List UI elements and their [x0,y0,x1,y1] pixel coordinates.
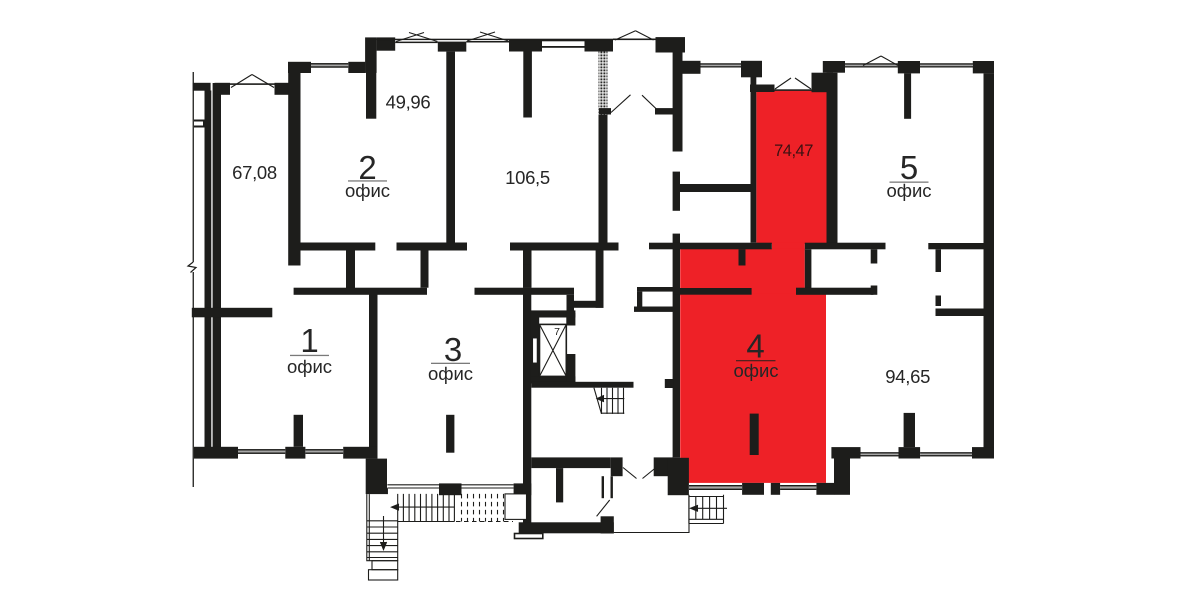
svg-text:4: 4 [746,328,764,365]
svg-text:74,47: 74,47 [774,142,813,160]
svg-text:67,08: 67,08 [232,162,277,183]
svg-text:офис: офис [886,180,931,201]
svg-text:офис: офис [428,363,473,384]
svg-text:офис: офис [345,180,390,201]
svg-text:49,96: 49,96 [386,92,431,113]
svg-text:офис: офис [287,356,332,377]
svg-text:7: 7 [554,326,560,338]
svg-text:1: 1 [300,322,318,359]
svg-text:94,65: 94,65 [885,366,930,387]
svg-text:106,5: 106,5 [505,167,550,188]
svg-text:офис: офис [733,360,778,381]
